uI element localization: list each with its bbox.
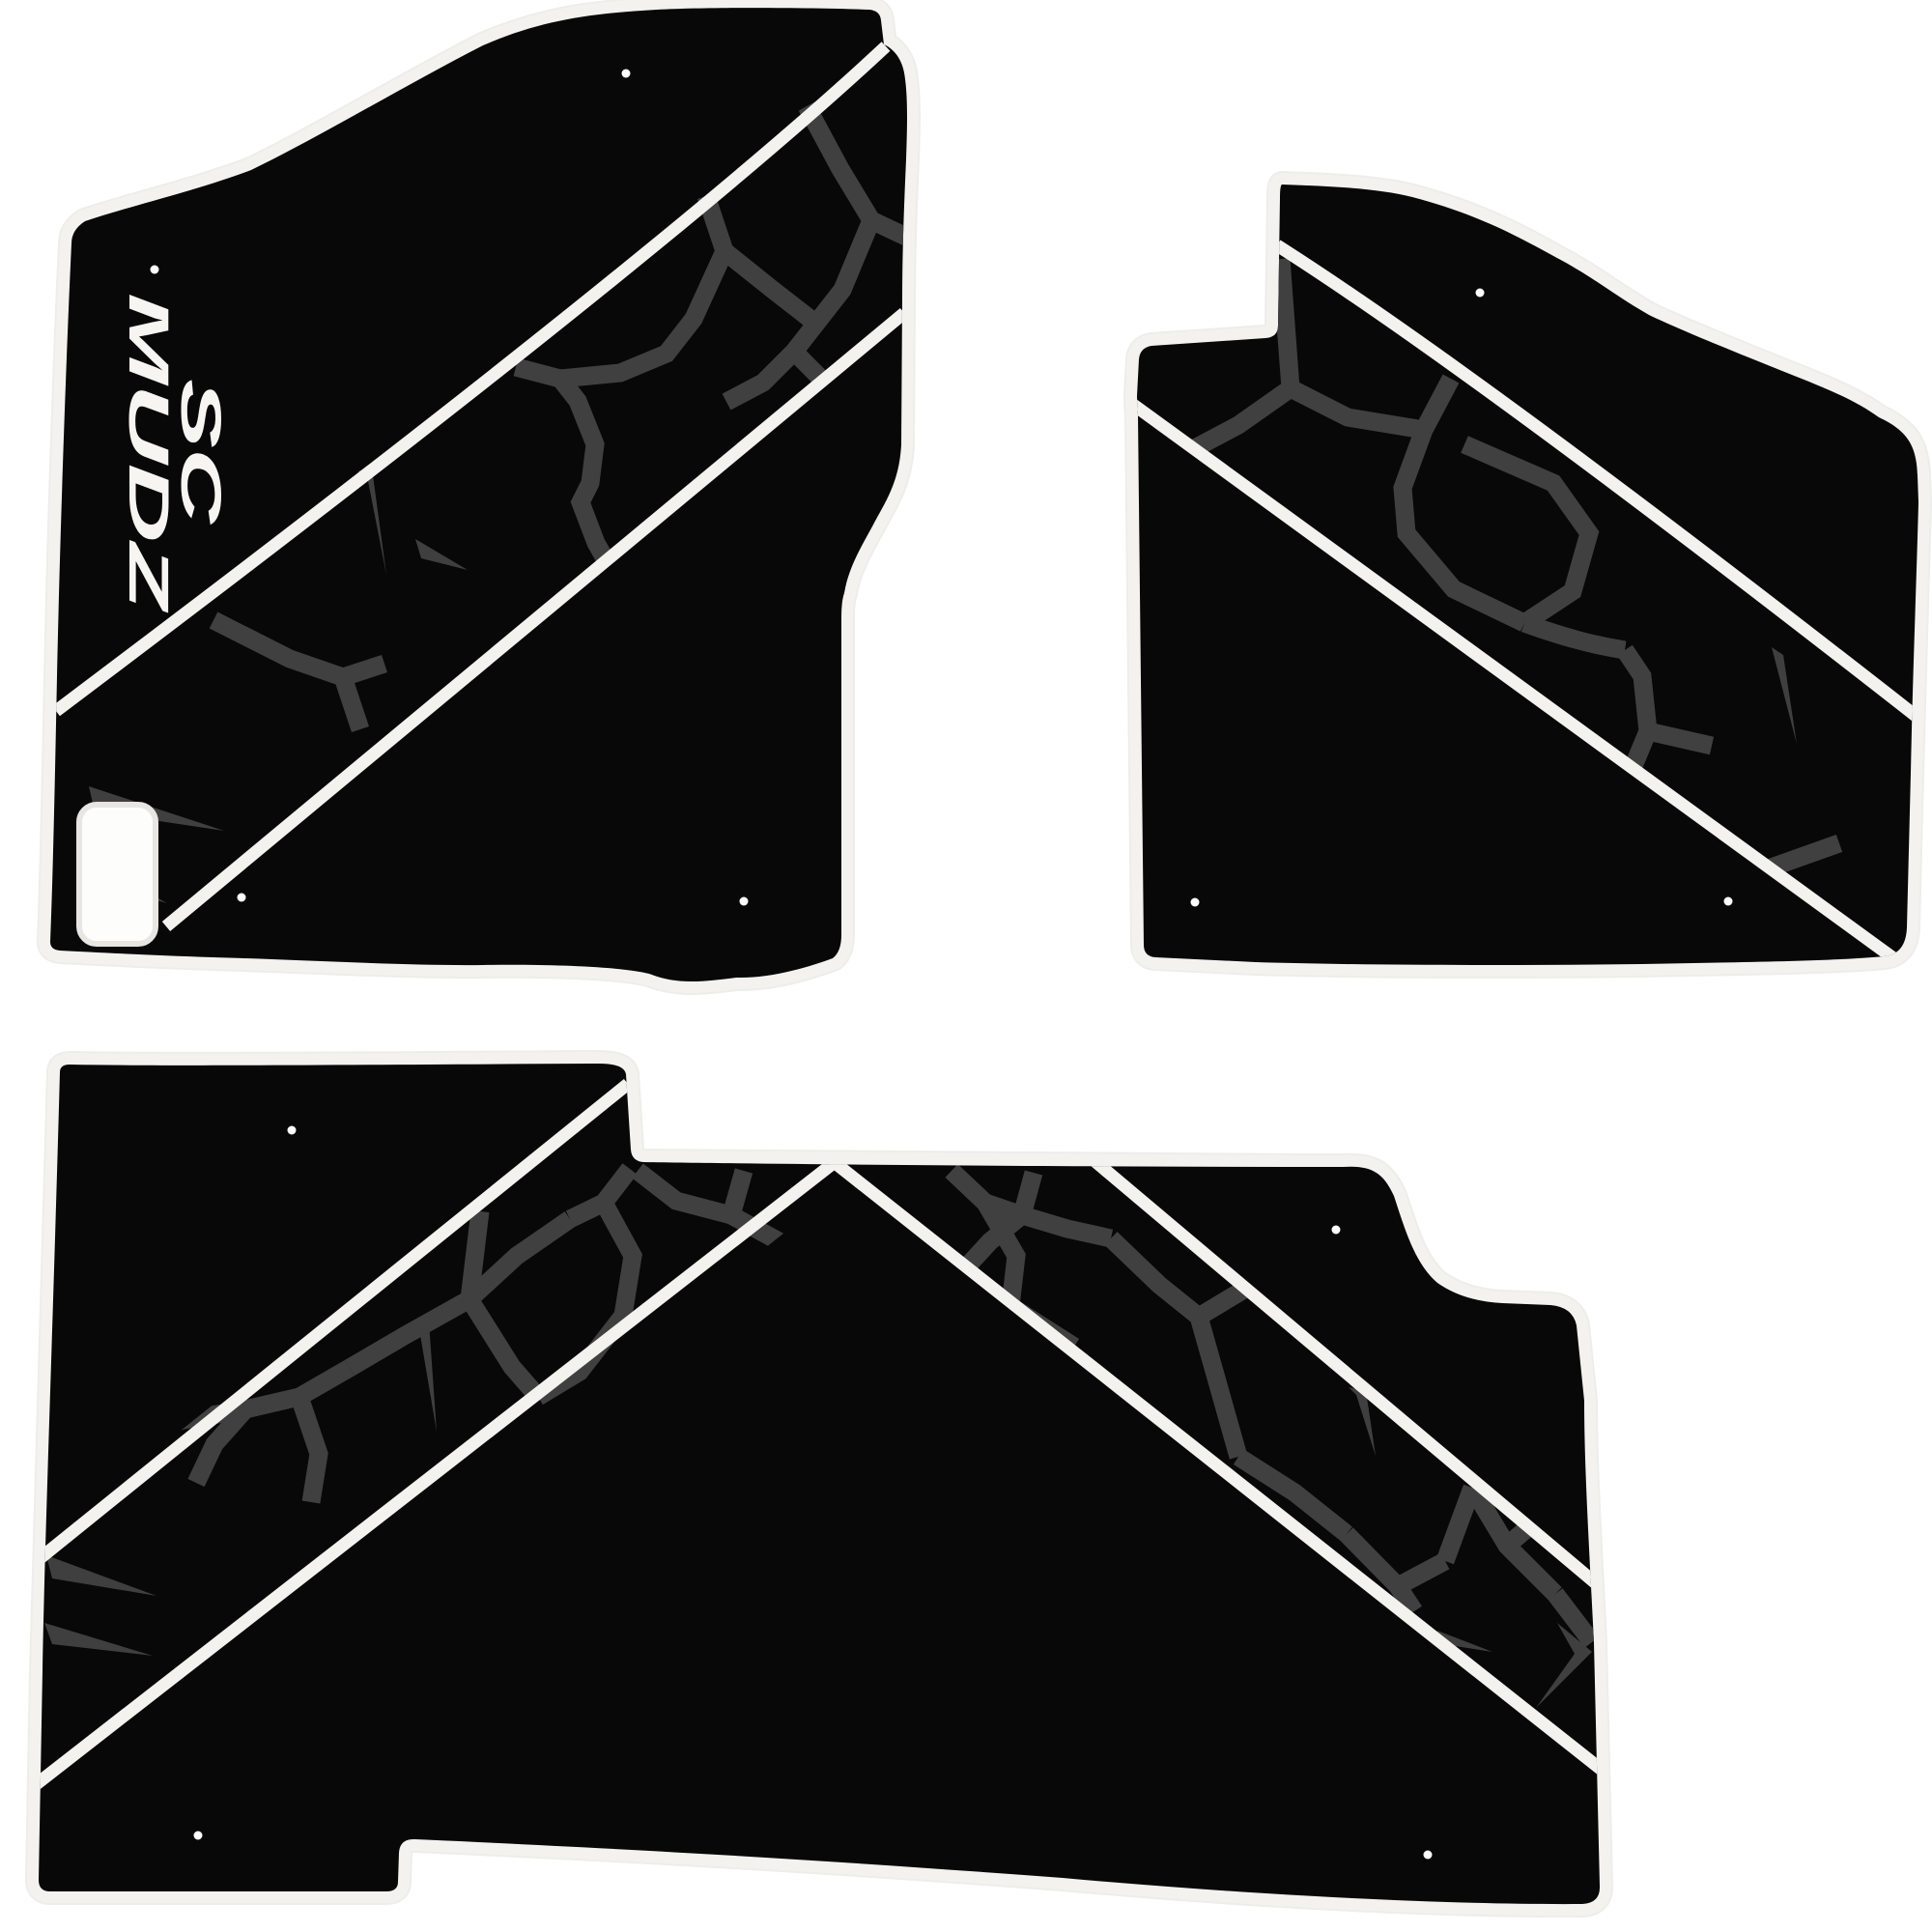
svg-text:MUDZ: MUDZ bbox=[117, 293, 180, 614]
